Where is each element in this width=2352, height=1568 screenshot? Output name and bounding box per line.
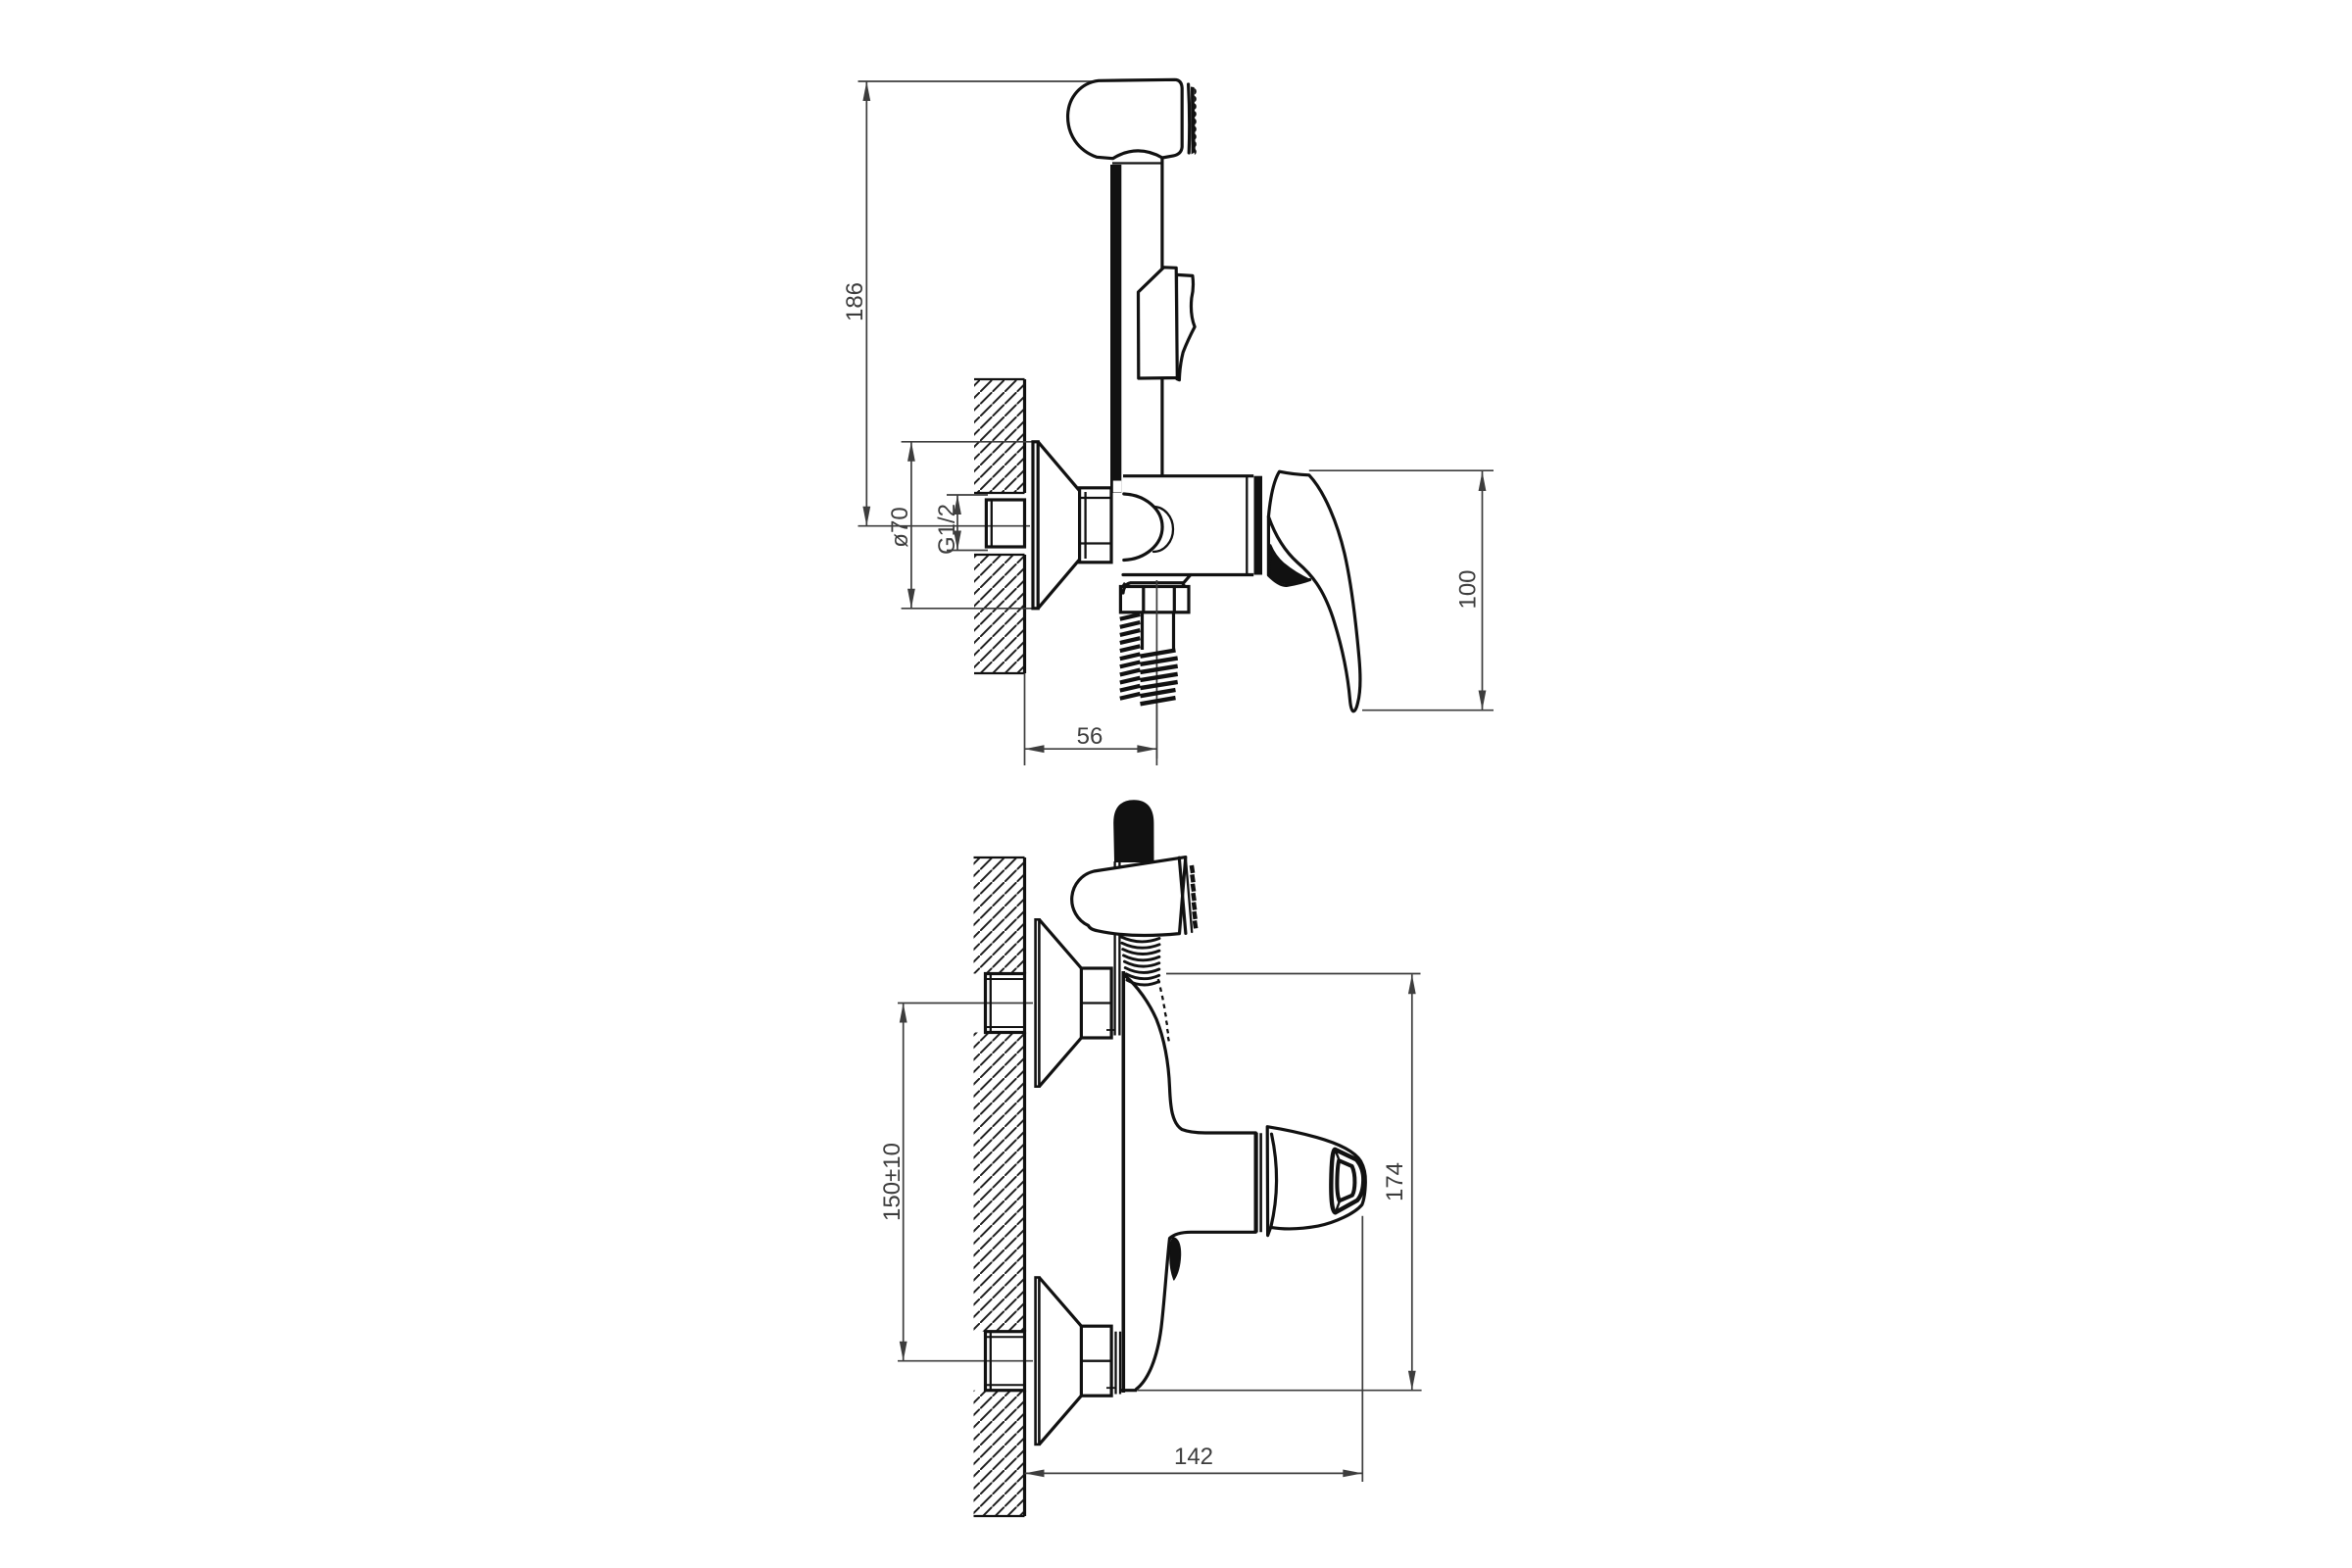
svg-text:142: 142 xyxy=(1174,1444,1213,1470)
svg-text:G1/2: G1/2 xyxy=(934,504,960,555)
svg-text:150±10: 150±10 xyxy=(879,1143,906,1221)
svg-text:56: 56 xyxy=(1077,723,1103,750)
svg-text:186: 186 xyxy=(842,282,868,321)
svg-text:ø70: ø70 xyxy=(887,507,913,547)
svg-text:174: 174 xyxy=(1382,1162,1408,1201)
svg-text:100: 100 xyxy=(1455,569,1482,609)
